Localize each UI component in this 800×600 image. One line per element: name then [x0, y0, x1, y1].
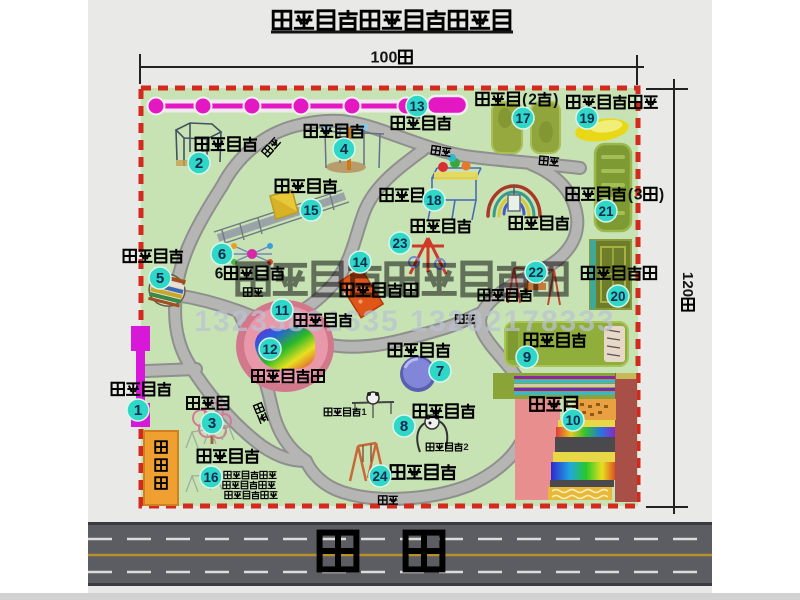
svg-text:1: 1	[371, 49, 380, 66]
svg-text:): )	[659, 186, 664, 203]
svg-text:2: 2	[679, 280, 696, 288]
svg-text:22: 22	[528, 265, 543, 280]
svg-text:5: 5	[156, 270, 164, 287]
svg-text:1: 1	[361, 407, 367, 418]
svg-text:18: 18	[426, 193, 442, 208]
svg-text:21: 21	[598, 204, 614, 219]
svg-text:6: 6	[218, 246, 226, 263]
svg-text:14: 14	[352, 255, 368, 270]
svg-text:12: 12	[262, 342, 277, 357]
svg-text:1: 1	[134, 402, 142, 419]
svg-text:0: 0	[380, 49, 389, 66]
svg-text:9: 9	[523, 349, 531, 366]
svg-text:0: 0	[679, 289, 696, 297]
svg-text:17: 17	[515, 111, 530, 126]
svg-text:13233831635 13202178333: 13233831635 13202178333	[194, 305, 615, 338]
svg-text:10: 10	[565, 413, 580, 428]
svg-text:24: 24	[372, 469, 388, 484]
svg-text:13: 13	[409, 99, 425, 114]
svg-text:6: 6	[215, 265, 224, 282]
svg-text:15: 15	[303, 203, 319, 218]
svg-text:1: 1	[679, 272, 696, 280]
svg-text:3: 3	[208, 415, 216, 432]
svg-text:2: 2	[528, 91, 537, 108]
svg-text:2: 2	[463, 442, 468, 453]
svg-text:8: 8	[400, 418, 408, 435]
svg-text:2: 2	[195, 155, 203, 172]
svg-text:19: 19	[579, 111, 594, 126]
svg-text:20: 20	[610, 289, 625, 304]
svg-text:11: 11	[275, 303, 290, 318]
svg-text:): )	[553, 91, 558, 108]
svg-text:0: 0	[389, 49, 398, 66]
svg-text:16: 16	[203, 470, 219, 485]
svg-text:3: 3	[634, 186, 643, 203]
svg-text:4: 4	[340, 141, 349, 158]
svg-text:23: 23	[392, 236, 408, 251]
svg-text:7: 7	[436, 363, 444, 380]
